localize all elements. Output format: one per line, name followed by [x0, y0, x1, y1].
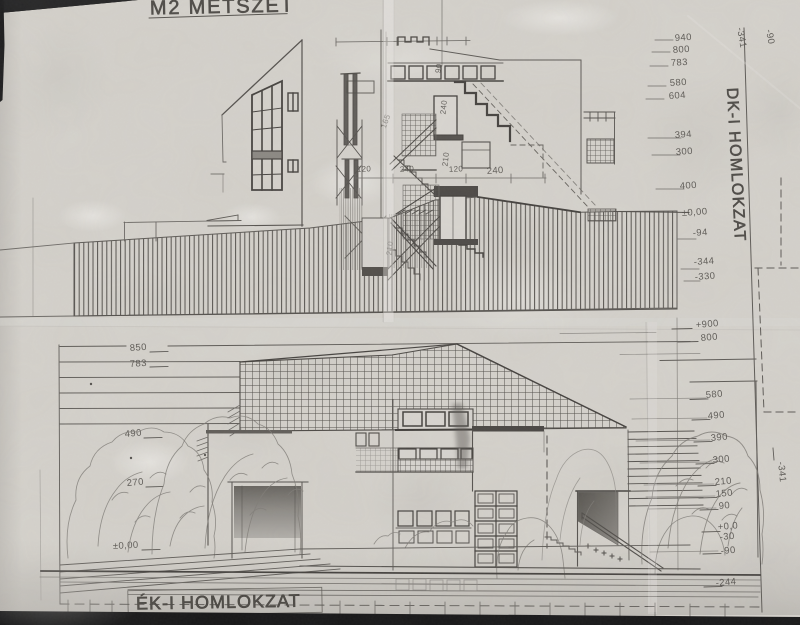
svg-text:240: 240 — [486, 165, 503, 177]
svg-text:±0,00: ±0,00 — [681, 206, 707, 219]
svg-text:±0,00: ±0,00 — [113, 540, 139, 552]
svg-text:240: 240 — [439, 99, 449, 114]
svg-text:120: 120 — [449, 164, 464, 174]
svg-text:M2 METSZET: M2 METSZET — [150, 0, 295, 19]
svg-text:940: 940 — [674, 32, 692, 44]
svg-text:850: 850 — [129, 342, 147, 354]
svg-text:90: 90 — [718, 500, 730, 512]
svg-text:90: 90 — [434, 63, 445, 74]
svg-text:604: 604 — [668, 90, 686, 102]
svg-text:270: 270 — [126, 477, 144, 489]
svg-text:300: 300 — [712, 454, 730, 466]
svg-text:-344: -344 — [693, 256, 714, 268]
svg-text:-90: -90 — [720, 545, 736, 557]
svg-text:800: 800 — [672, 44, 690, 56]
svg-text:394: 394 — [674, 129, 692, 141]
svg-text:-341: -341 — [775, 461, 788, 483]
svg-text:+900: +900 — [695, 318, 719, 331]
svg-text:490: 490 — [124, 428, 142, 440]
svg-text:210: 210 — [714, 476, 732, 488]
svg-text:120: 120 — [357, 164, 372, 174]
svg-text:580: 580 — [705, 389, 723, 401]
svg-text:-30: -30 — [719, 531, 735, 543]
svg-text:783: 783 — [129, 358, 147, 370]
svg-text:-94: -94 — [692, 227, 708, 239]
svg-text:300: 300 — [675, 146, 693, 158]
svg-text:783: 783 — [670, 57, 688, 69]
svg-text:490: 490 — [707, 410, 725, 422]
svg-text:390: 390 — [710, 432, 728, 444]
svg-text:580: 580 — [669, 77, 687, 89]
svg-text:-244: -244 — [715, 576, 737, 589]
svg-text:ÉK-I HOMLOKZAT: ÉK-I HOMLOKZAT — [136, 591, 301, 614]
svg-text:210: 210 — [441, 151, 451, 166]
svg-text:800: 800 — [700, 332, 718, 344]
svg-text:240: 240 — [400, 164, 415, 174]
svg-text:150: 150 — [715, 488, 733, 500]
svg-text:-330: -330 — [694, 271, 715, 283]
svg-text:400: 400 — [679, 180, 697, 192]
